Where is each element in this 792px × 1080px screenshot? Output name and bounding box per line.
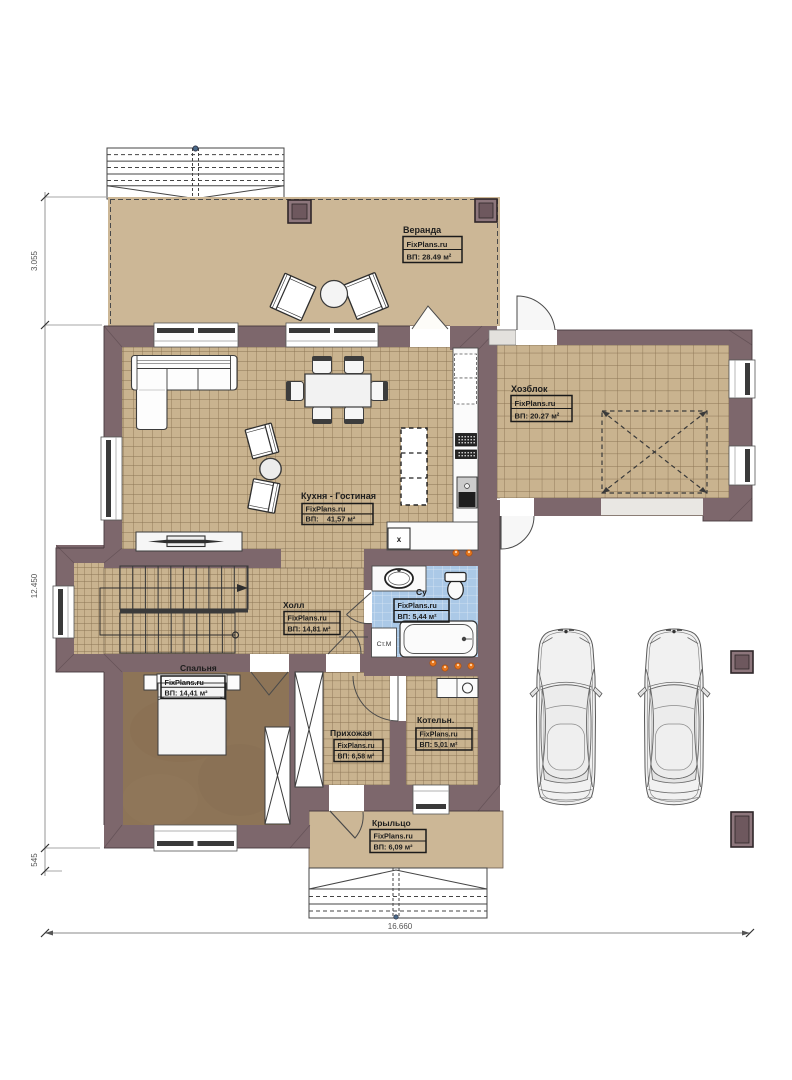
svg-text:Холл: Холл bbox=[283, 600, 304, 610]
svg-text:ВП: 14,81 м²: ВП: 14,81 м² bbox=[288, 625, 332, 634]
svg-text:Веранда: Веранда bbox=[403, 225, 442, 235]
svg-text:FixPlans.ru: FixPlans.ru bbox=[515, 399, 556, 408]
svg-text:Кухня - Гостиная: Кухня - Гостиная bbox=[301, 491, 376, 501]
svg-text:FixPlans.ru: FixPlans.ru bbox=[338, 743, 375, 750]
svg-text:Су: Су bbox=[416, 587, 427, 597]
svg-text:FixPlans.ru: FixPlans.ru bbox=[420, 731, 458, 739]
svg-text:Котельн.: Котельн. bbox=[417, 715, 454, 725]
svg-text:FixPlans.ru: FixPlans.ru bbox=[288, 614, 327, 623]
svg-text:Хозблок: Хозблок bbox=[511, 384, 548, 394]
svg-text:ВП: 14,41 м²: ВП: 14,41 м² bbox=[165, 689, 209, 698]
svg-text:x: x bbox=[397, 535, 402, 544]
svg-text:ВП: 5,44 м²: ВП: 5,44 м² bbox=[398, 612, 438, 621]
svg-text:ВП: 41,57 м²: ВП: 41,57 м² bbox=[306, 515, 356, 524]
svg-text:3.055: 3.055 bbox=[30, 250, 39, 271]
svg-text:Крыльцо: Крыльцо bbox=[372, 818, 411, 828]
svg-text:FixPlans.ru: FixPlans.ru bbox=[374, 832, 413, 841]
svg-text:ВП: 6,58 м²: ВП: 6,58 м² bbox=[338, 754, 376, 761]
svg-text:545: 545 bbox=[30, 853, 39, 867]
svg-text:FixPlans.ru: FixPlans.ru bbox=[407, 240, 448, 249]
svg-text:Прихожая: Прихожая bbox=[330, 728, 372, 738]
svg-text:FixPlans.ru: FixPlans.ru bbox=[306, 505, 346, 514]
svg-text:ВП: 20.27 м²: ВП: 20.27 м² bbox=[515, 412, 560, 421]
svg-text:FixPlans.ru: FixPlans.ru bbox=[398, 601, 437, 610]
svg-text:12.450: 12.450 bbox=[30, 573, 39, 598]
svg-text:ВП: 6,09 м²: ВП: 6,09 м² bbox=[374, 843, 414, 852]
svg-text:Ст.М: Ст.М bbox=[377, 641, 392, 648]
svg-text:FixPlans.ru: FixPlans.ru bbox=[165, 678, 204, 687]
svg-text:ВП: 5,01 м²: ВП: 5,01 м² bbox=[420, 741, 459, 749]
svg-text:Спальня: Спальня bbox=[180, 663, 217, 673]
svg-text:16.660: 16.660 bbox=[388, 922, 413, 931]
svg-text:ВП: 28.49 м²: ВП: 28.49 м² bbox=[407, 253, 452, 262]
